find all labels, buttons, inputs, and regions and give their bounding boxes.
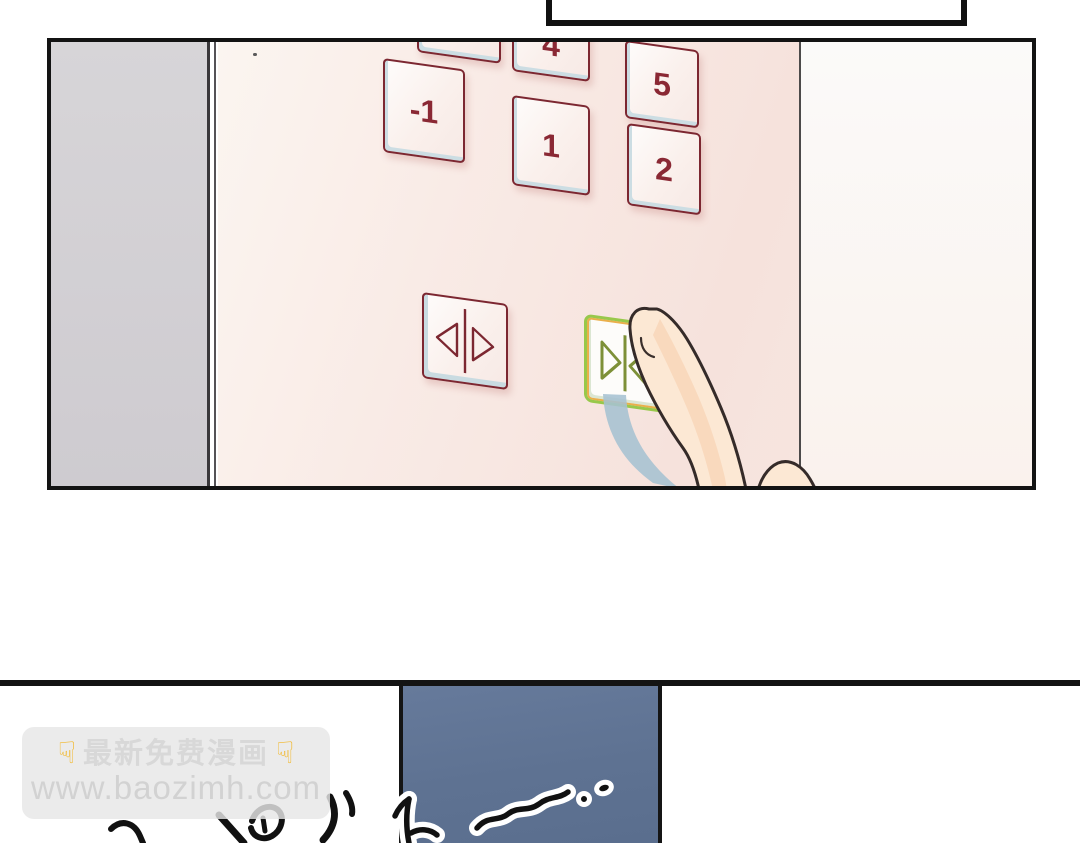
sfx-halo-stroke (407, 799, 409, 843)
hand-overlay (51, 42, 1032, 486)
site-watermark: ☟ 最新免费漫画 ☟ www.baozimh.com (22, 727, 330, 819)
sfx-dot (595, 780, 613, 795)
sfx-stroke (219, 815, 244, 843)
sfx-stroke (111, 823, 143, 843)
elevator-panel-scene: 4 5 -1 1 2 (51, 42, 1032, 486)
sfx-stroke (263, 818, 265, 831)
watermark-title-row: ☟ 最新免费漫画 ☟ (58, 739, 295, 769)
sfx-stroke (346, 793, 352, 814)
elevator-panel-frame: 4 5 -1 1 2 (47, 38, 1036, 490)
knuckle-bump (757, 462, 817, 486)
sfx-dot (579, 794, 590, 805)
watermark-url: www.baozimh.com (31, 769, 321, 807)
speech-bubble-partial (546, 0, 967, 26)
point-down-icon: ☟ (58, 739, 76, 769)
watermark-title: 最新免费漫画 (83, 740, 269, 769)
comic-page: 4 5 -1 1 2 (0, 0, 1080, 843)
point-down-icon: ☟ (276, 739, 294, 769)
